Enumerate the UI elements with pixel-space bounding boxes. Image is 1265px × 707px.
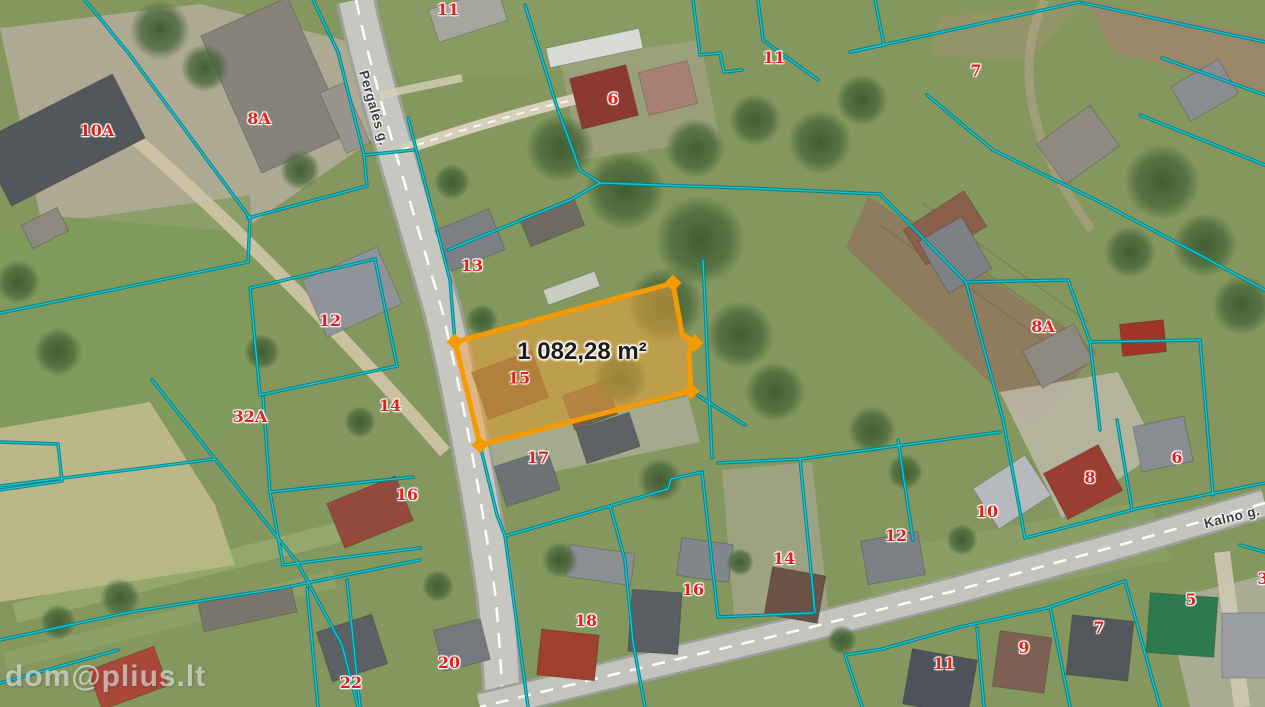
parcel-area-label: 1 082,28 m² bbox=[517, 338, 646, 366]
watermark: dom@plius.lt bbox=[5, 660, 206, 694]
map-view[interactable]: 10A8A116117131232A1416171816142220121086… bbox=[0, 0, 1265, 707]
highlighted-parcel-number: 15 bbox=[508, 369, 530, 388]
